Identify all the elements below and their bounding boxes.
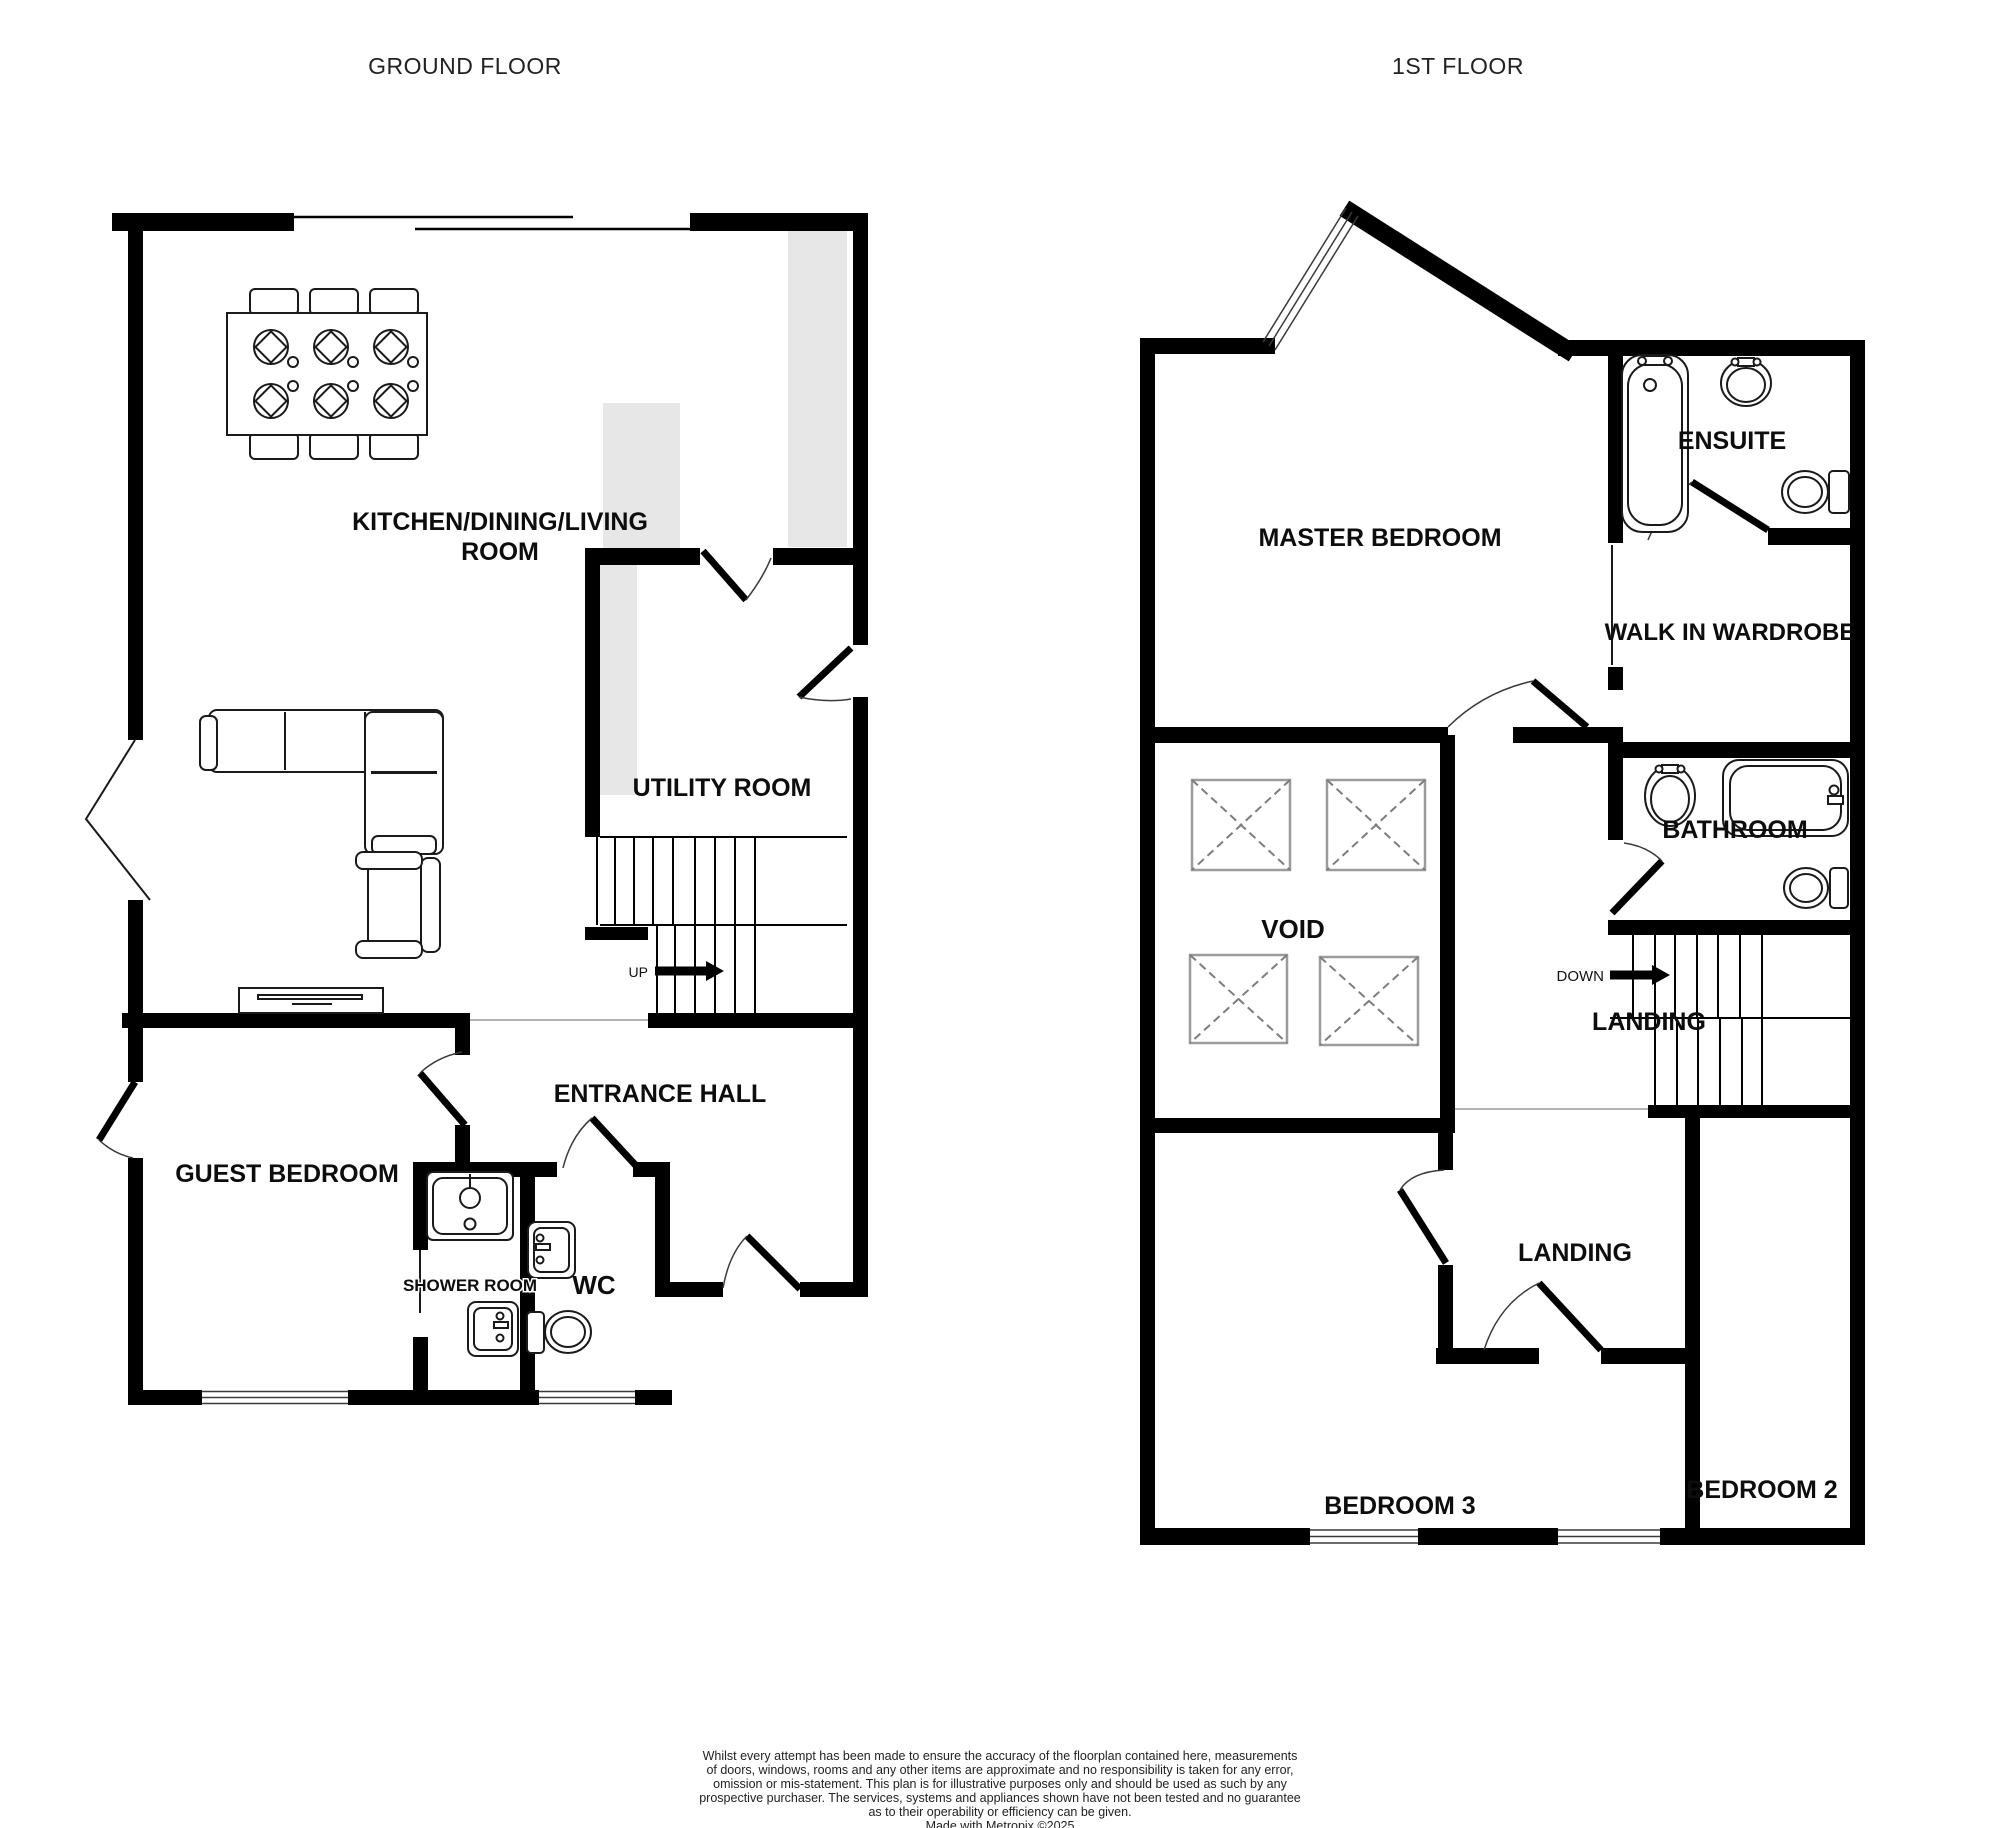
guest-bedroom-door: [420, 1052, 465, 1125]
bedroom-2-door: [1484, 1283, 1601, 1350]
bedroom-2-window: [1558, 1528, 1660, 1545]
bay-window: [86, 740, 150, 900]
void-label: VOID: [1261, 914, 1325, 944]
disclaimer-line: of doors, windows, rooms and any other i…: [706, 1763, 1293, 1777]
disclaimer-line: as to their operability or efficiency ca…: [868, 1805, 1131, 1819]
disclaimer: Whilst every attempt has been made to en…: [699, 1749, 1301, 1828]
void-opening-box: [1327, 780, 1425, 870]
void-openings: [1190, 780, 1425, 1045]
disclaimer-line: omission or mis-statement. This plan is …: [713, 1777, 1287, 1791]
shower-sink: [468, 1302, 518, 1356]
landing-lower-label: LANDING: [1518, 1239, 1632, 1267]
utility-door: [703, 551, 771, 600]
front-door: [723, 1236, 800, 1289]
stairs-up-label: UP: [629, 964, 648, 980]
angled-window: [1263, 208, 1358, 350]
bathroom-door: [1612, 843, 1662, 913]
utility-room-label: UTILITY ROOM: [633, 774, 812, 802]
patio-door: [99, 1082, 135, 1158]
entrance-hall-label: ENTRANCE HALL: [554, 1080, 767, 1108]
floorplan-page: GROUND FLOOR 1ST FLOOR: [0, 0, 2000, 1828]
wc-label: WC: [572, 1270, 616, 1300]
ground-floor-plan: UP: [86, 213, 868, 1405]
wc-toilet: [527, 1311, 591, 1353]
shower-room-label: SHOWER ROOM: [403, 1276, 537, 1295]
master-bedroom-door: [1448, 681, 1587, 727]
tv-unit: [239, 988, 383, 1013]
ground-floor-title: GROUND FLOOR: [368, 53, 562, 79]
up-arrow-icon: [655, 961, 724, 981]
kitchen-label-line1: KITCHEN/DINING/LIVING: [352, 508, 648, 536]
shower-tray: [427, 1172, 513, 1240]
bedroom-3-label: BEDROOM 3: [1324, 1492, 1475, 1520]
armchair: [356, 852, 440, 958]
utility-side-door: [799, 648, 851, 701]
bedroom-2-label: BEDROOM 2: [1686, 1476, 1837, 1504]
first-floor-plan: DOWN: [1140, 208, 1865, 1545]
landing-upper-label: LANDING: [1592, 1008, 1706, 1036]
ensuite-sink: [1721, 358, 1771, 406]
first-floor-title: 1ST FLOOR: [1392, 53, 1524, 79]
kitchen-label-line2: ROOM: [461, 538, 539, 566]
bathroom-label: BATHROOM: [1662, 816, 1807, 844]
void-opening-box: [1190, 955, 1287, 1043]
dining-table: [227, 289, 427, 459]
wc-window: [539, 1390, 635, 1405]
floorplan-canvas: GROUND FLOOR 1ST FLOOR: [0, 0, 2000, 1828]
kitchen-top-window: [294, 217, 690, 229]
disclaimer-line: Whilst every attempt has been made to en…: [703, 1749, 1298, 1763]
stairs-down-label: DOWN: [1557, 968, 1605, 985]
guest-bedroom-label: GUEST BEDROOM: [175, 1160, 399, 1188]
bathroom-toilet: [1784, 868, 1848, 908]
corner-sofa: [200, 710, 443, 854]
angled-wall: [1352, 213, 1566, 349]
wc-sink: [528, 1222, 575, 1278]
void-opening-box: [1320, 957, 1418, 1045]
wc-door: [563, 1118, 640, 1170]
down-arrow-icon: [1610, 965, 1670, 985]
void-opening-box: [1192, 780, 1290, 870]
ensuite-label: ENSUITE: [1678, 427, 1786, 455]
master-bedroom-label: MASTER BEDROOM: [1258, 524, 1501, 552]
disclaimer-credit: Made with Metropix ©2025: [926, 1819, 1075, 1828]
bedroom-3-door: [1400, 1170, 1446, 1263]
ground-staircase: UP: [597, 837, 847, 1013]
walk-in-wardrobe-label: WALK IN WARDROBE: [1605, 619, 1856, 646]
disclaimer-line: prospective purchaser. The services, sys…: [699, 1791, 1301, 1805]
bedroom-3-window: [1310, 1528, 1418, 1545]
ensuite-toilet: [1782, 471, 1849, 513]
guest-bedroom-window: [202, 1390, 348, 1405]
